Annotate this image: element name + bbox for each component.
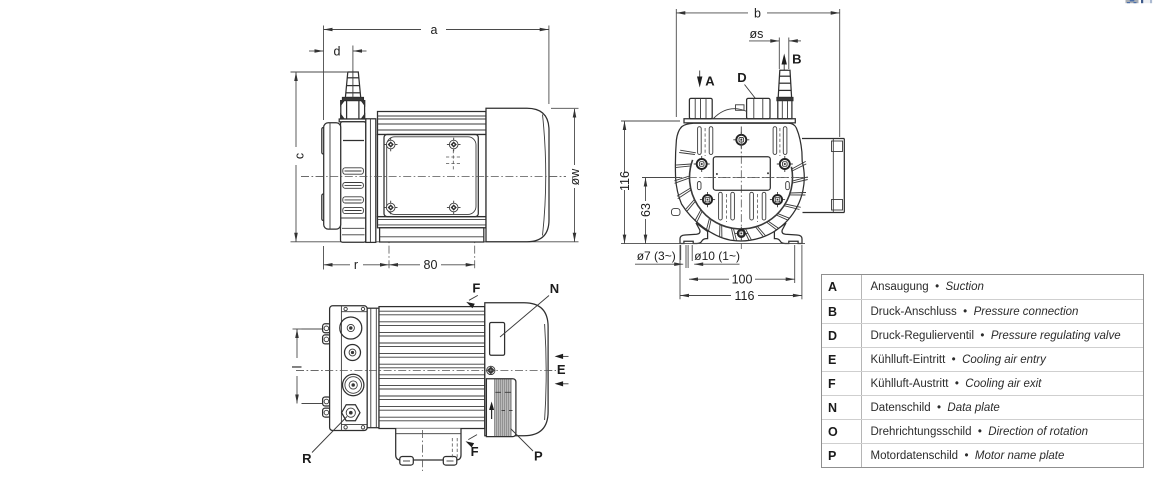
svg-text:116: 116 [618,171,632,191]
svg-text:l: l [290,366,304,369]
svg-text:ø10 (1~): ø10 (1~) [694,249,740,263]
svg-text:b: b [754,6,761,20]
svg-text:ø7 (3~): ø7 (3~) [637,249,676,263]
svg-text:N: N [550,281,559,296]
svg-text:r: r [354,258,358,272]
svg-text:B: B [792,51,801,66]
svg-text:R: R [302,451,312,466]
svg-text:E: E [557,362,566,377]
svg-text:øs: øs [750,27,764,41]
svg-text:F: F [472,280,480,295]
svg-text:116: 116 [735,289,755,303]
svg-text:100: 100 [732,273,753,287]
svg-text:A: A [705,73,715,88]
svg-text:c: c [293,153,307,159]
svg-text:80: 80 [424,258,438,272]
svg-text:P: P [534,449,543,464]
svg-text:63: 63 [639,203,653,217]
svg-text:d: d [334,44,341,58]
svg-text:D: D [737,70,746,85]
svg-text:øw: øw [568,168,582,186]
svg-text:a: a [431,23,438,37]
